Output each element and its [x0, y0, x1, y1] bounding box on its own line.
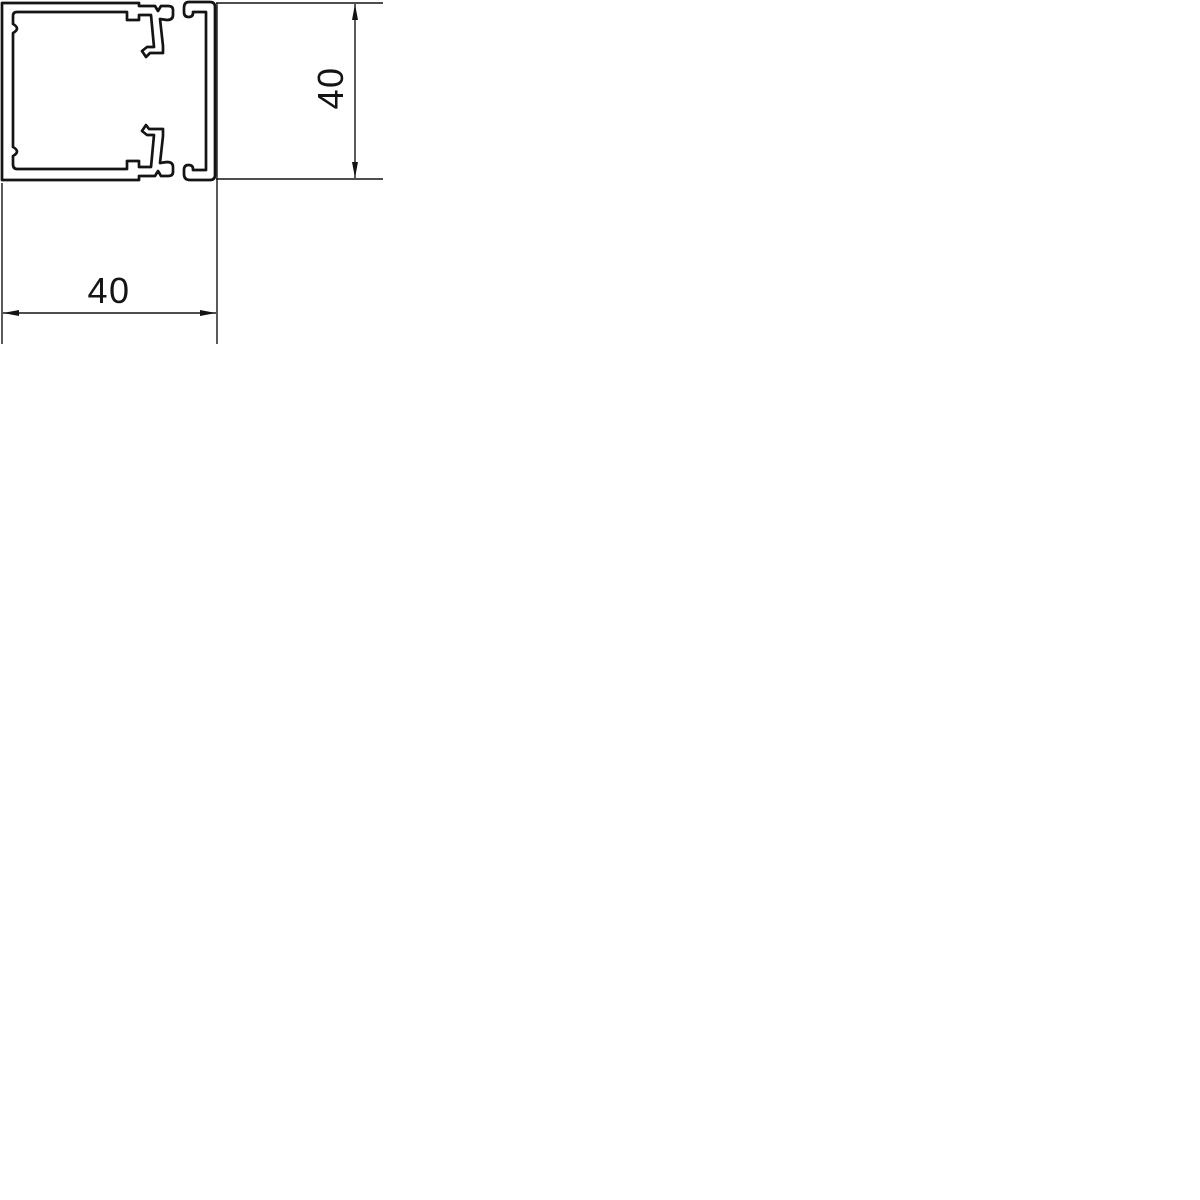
trunking-cover-profile — [184, 2, 215, 180]
drawing-canvas: 40 40 — [0, 0, 1200, 1200]
base-profile-outline — [2, 3, 173, 180]
arrowhead-left-icon — [3, 310, 19, 316]
height-dimension-label: 40 — [310, 66, 351, 109]
trunking-base-profile — [2, 3, 173, 180]
arrowhead-right-icon — [200, 310, 216, 316]
arrowhead-down-icon — [352, 162, 358, 178]
cover-profile-outline — [184, 2, 215, 180]
arrowhead-up-icon — [352, 4, 358, 20]
height-dimension: 40 — [216, 3, 383, 179]
technical-drawing: 40 40 — [0, 0, 1200, 1200]
width-dimension-label: 40 — [87, 270, 130, 311]
